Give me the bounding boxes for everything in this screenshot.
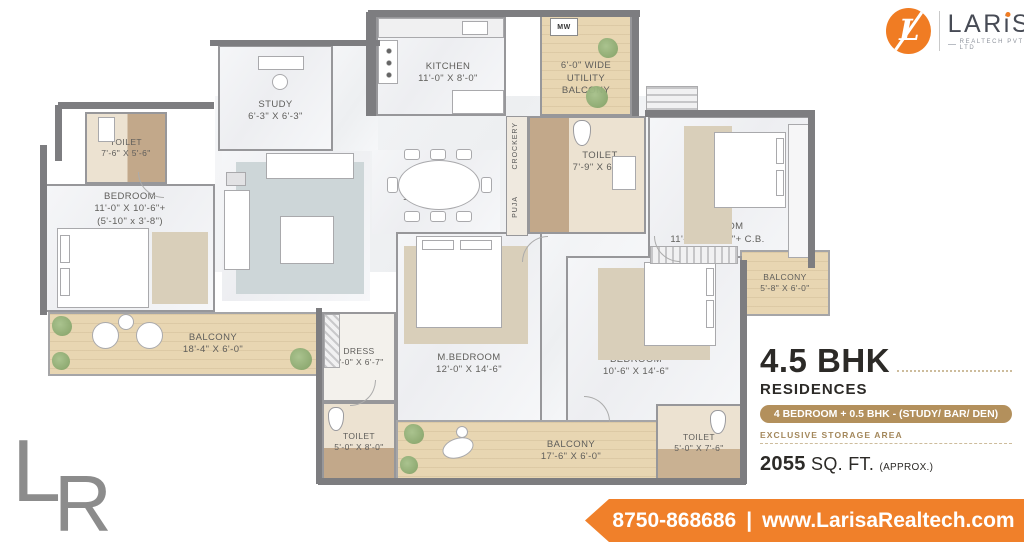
chair-icon [404,149,420,160]
unit-subtitle: RESIDENCES [760,381,1012,398]
dining-table-icon [398,160,480,210]
room-dims: 11'-0" X 8'-0" [418,73,478,85]
wall-segment [368,10,640,17]
balcony-chair-icon [136,322,163,349]
plant-icon [52,352,70,370]
plant-icon [404,424,424,444]
wall-segment [58,102,214,109]
pillow-icon [776,138,784,164]
wall-segment [645,110,815,117]
watermark-letter-r: R [54,472,112,536]
room-name: TOILET [683,432,715,443]
wall-segment [808,112,815,268]
puja-label: PUJA [512,196,519,218]
area-approx: (APPROX.) [879,462,933,473]
plant-icon [400,456,418,474]
pillow-icon [706,268,714,296]
area-line: 2055 SQ. FT. (APPROX.) [760,453,1012,476]
pillow-icon [422,240,454,250]
dashed-divider [760,443,1012,444]
brand-name: LARiSA [948,12,1024,37]
brand-subtitle: REALTECH PVT LTD [948,39,1024,51]
plant-icon [290,348,312,370]
pillow-icon [60,235,70,263]
logo-text: LARiSA REALTECH PVT LTD [948,12,1024,51]
wall-segment [318,478,746,485]
pillow-icon [776,170,784,196]
room-name: DRESS [343,346,374,357]
area-unit: SQ. FT. [811,454,874,474]
brand-name-part: SA [1012,10,1024,38]
room-name: TOILET [343,431,375,442]
room-dims: 10'-6" X 14'-6" [603,366,669,378]
info-panel: 4.5 BHK RESIDENCES 4 BEDROOM + 0.5 BHK -… [760,344,1012,476]
logo-divider [939,11,940,51]
brand-name-part: LAR [948,10,1004,38]
study-chair-icon [272,74,288,90]
balcony-chair-icon [92,322,119,349]
chair-icon [456,149,472,160]
plant-icon [598,38,618,58]
wall-segment [316,308,322,484]
room-dims-extra: (5'-10" x 3'-8") [97,216,163,228]
sofa-icon [224,190,250,270]
room-name: KITCHEN [426,61,471,73]
room-toilet-bottom-right: TOILET5'-0" X 7'-6" [656,404,742,482]
dress-closet-hatch [324,314,340,368]
room-dims: 7'-6" X 5'-6" [101,148,150,159]
chair-icon [404,211,420,222]
room-dims: 12'-0" X 14'-6" [436,364,502,376]
room-dims: 18'-4" X 6'-0" [183,344,243,356]
chair-icon [430,149,446,160]
room-dims: 5'-0" X 8'-0" [334,442,383,453]
banner-separator: | [746,509,752,533]
storage-note: EXCLUSIVE STORAGE AREA [760,430,1012,440]
larisa-logo-icon: L [886,8,931,54]
chair-icon [456,211,472,222]
room-name: BALCONY [189,332,237,344]
room-name: STUDY [258,99,292,111]
brand-name-i: i [1004,10,1012,38]
floorplan-canvas: TOILET7'-6" X 5'-6" BEDROOM11'-0" X 10'-… [0,0,1024,548]
kitchen-sink-icon [462,21,488,35]
logo-monogram: L [899,13,919,47]
microwave-icon: MW [550,18,578,36]
crockery-label: CROCKERY [512,122,519,170]
tv-unit-icon [226,172,246,186]
brand-logo: L LARiSA REALTECH PVT LTD [886,8,1024,54]
cupboard-strip [788,124,810,258]
room-dims: 5'-0" X 7'-6" [674,443,723,454]
wall-segment [40,145,47,315]
chair-icon [387,177,398,193]
study-desk-icon [258,56,304,70]
area-value: 2055 [760,453,806,475]
sofa-icon [266,153,354,179]
wall-segment [740,260,747,484]
washbasin-icon [612,156,636,190]
title-row: 4.5 BHK [760,344,1012,377]
wall-segment [55,105,62,161]
pillow-icon [60,268,70,296]
rug-icon [152,232,208,304]
room-dims: 5'-0" X 6'-7" [334,357,383,368]
phone-number[interactable]: 8750-868686 [612,509,736,533]
contact-banner[interactable]: 8750-868686 | www.LarisaRealtech.com [585,499,1024,542]
room-dims: 6'-3" X 6'-3" [248,111,303,123]
bed-left-icon [57,228,149,308]
microwave-label: MW [557,24,570,31]
room-balcony-left: BALCONY18'-4" X 6'-0" [48,312,322,376]
pillow-icon [706,300,714,328]
room-balcony-bottom: BALCONY17'-6" X 6'-0" [396,420,660,482]
room-dims: 17'-6" X 6'-0" [541,451,601,463]
website-link[interactable]: www.LarisaRealtech.com [762,509,1014,533]
balcony-table-icon [118,314,134,330]
room-dims: 11'-0" X 10'-6"+ [94,203,165,215]
pillow-icon [460,240,492,250]
chair-icon [430,211,446,222]
room-dims: 5'-8" X 6'-0" [760,283,809,294]
chair-icon [481,177,492,193]
unit-type-title: 4.5 BHK [760,344,890,377]
toilet-wc-icon [98,117,115,142]
coffee-table-icon [280,216,334,264]
room-name: BALCONY [763,272,806,283]
wall-segment [632,10,639,116]
room-balcony-right: BALCONY5'-8" X 6'-0" [740,250,830,316]
dotted-divider [897,370,1012,372]
wall-segment [210,40,380,46]
plant-icon [586,86,608,108]
plant-icon [52,316,72,336]
room-name: M.BEDROOM [437,352,500,364]
wall-segment [366,12,376,116]
stove-icon [378,40,398,84]
kitchen-island-icon [452,90,504,114]
configuration-badge: 4 BEDROOM + 0.5 BHK - (STUDY/ BAR/ DEN) [760,405,1012,423]
room-name: BALCONY [547,439,595,451]
